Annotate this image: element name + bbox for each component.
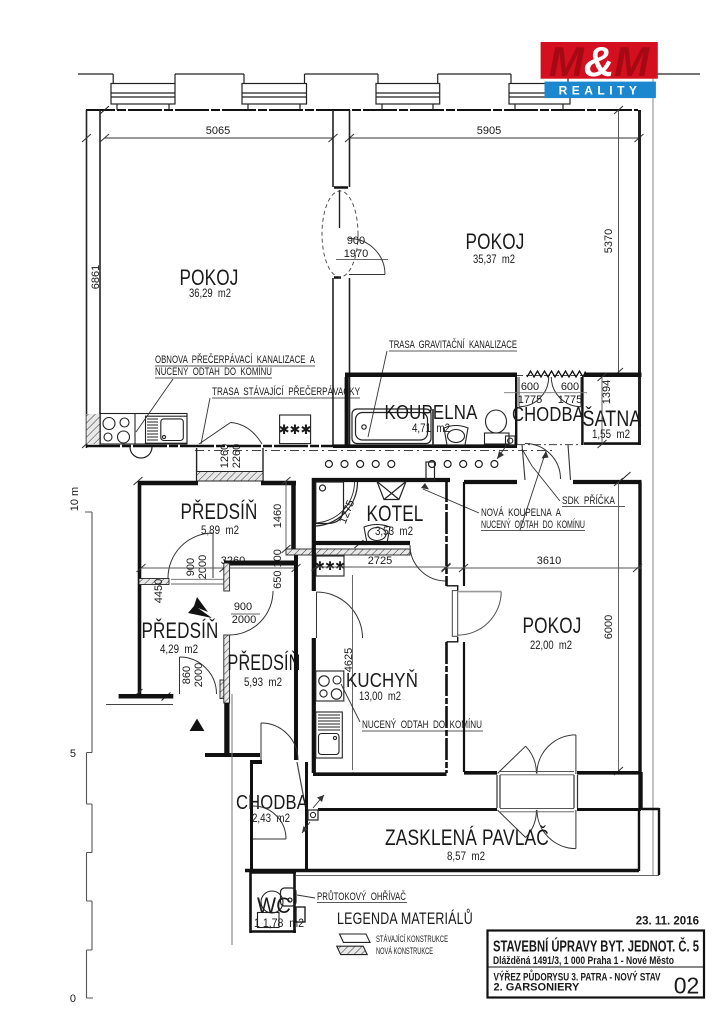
svg-text:650 100: 650 100 <box>272 549 284 589</box>
svg-text:STÁVAJÍCÍ KONSTRUKCE: STÁVAJÍCÍ KONSTRUKCE <box>376 934 448 945</box>
svg-text:PŘEDSÍŇ: PŘEDSÍŇ <box>142 618 219 643</box>
svg-text:NUCENÝ ODTAH DO KOMÍNU: NUCENÝ ODTAH DO KOMÍNU <box>155 365 272 378</box>
svg-text:NOVÁ KOUPELNA A: NOVÁ KOUPELNA A <box>481 506 561 519</box>
svg-text:5065: 5065 <box>206 125 230 137</box>
svg-text:Dlážděná 1491/3, 1 000 Praha 1: Dlážděná 1491/3, 1 000 Praha 1 - Nové Mě… <box>493 955 674 967</box>
svg-text:ŠATNA: ŠATNA <box>583 406 642 431</box>
svg-text:POKOJ: POKOJ <box>523 613 582 638</box>
svg-text:NUCENÝ ODTAH DO KOMÍNU: NUCENÝ ODTAH DO KOMÍNU <box>481 518 585 531</box>
svg-text:5,89 m2: 5,89 m2 <box>201 525 239 537</box>
svg-text:3610: 3610 <box>537 555 561 567</box>
svg-text:2260: 2260 <box>231 444 243 468</box>
svg-text:5,93 m2: 5,93 m2 <box>244 677 282 689</box>
svg-text:WC: WC <box>257 893 291 918</box>
svg-text:6000: 6000 <box>603 615 615 639</box>
svg-text:10 m: 10 m <box>69 487 81 511</box>
svg-text:1970: 1970 <box>344 248 368 260</box>
svg-text:600: 600 <box>521 381 539 393</box>
svg-text:CHODBA: CHODBA <box>512 404 584 426</box>
svg-text:0: 0 <box>70 993 76 1005</box>
svg-text:✱✱✱: ✱✱✱ <box>315 559 345 573</box>
svg-text:1260: 1260 <box>219 444 231 468</box>
svg-text:900: 900 <box>234 601 252 613</box>
svg-text:REALITY: REALITY <box>559 84 642 98</box>
svg-text:23. 11. 2016: 23. 11. 2016 <box>636 916 699 928</box>
svg-text:4625: 4625 <box>343 648 355 672</box>
svg-text:OBNOVA PŘEČERPÁVACÍ KANALIZA: OBNOVA PŘEČERPÁVACÍ KANALIZACE A <box>155 353 315 366</box>
svg-text:900: 900 <box>185 558 197 576</box>
svg-text:2000: 2000 <box>197 555 209 579</box>
svg-text:CHODBA: CHODBA <box>236 792 308 814</box>
svg-text:2,43 m2: 2,43 m2 <box>252 813 290 825</box>
svg-text:STAVEBNÍ ÚPRAVY BYT. JEDNOT. Č: STAVEBNÍ ÚPRAVY BYT. JEDNOT. Č. 5 <box>493 938 699 956</box>
svg-text:02: 02 <box>674 973 700 999</box>
svg-text:NOVÁ KONSTRUKCE: NOVÁ KONSTRUKCE <box>376 946 433 957</box>
svg-text:TRASA GRAVITAČNÍ KANALIZACE: TRASA GRAVITAČNÍ KANALIZACE <box>389 338 517 351</box>
svg-text:PRŮTOKOVÝ OHŘÍVAČ: PRŮTOKOVÝ OHŘÍVAČ <box>317 890 406 903</box>
svg-text:1,55 m2: 1,55 m2 <box>592 429 630 441</box>
svg-text:M&M: M&M <box>549 38 650 85</box>
svg-text:PŘEDSÍŇ: PŘEDSÍŇ <box>228 650 301 675</box>
svg-text:POKOJ: POKOJ <box>466 229 525 254</box>
svg-text:LEGENDA MATERIÁLŮ: LEGENDA MATERIÁLŮ <box>337 909 473 928</box>
svg-text:600: 600 <box>561 381 579 393</box>
svg-text:PŘEDSÍŇ: PŘEDSÍŇ <box>181 499 258 524</box>
svg-text:5905: 5905 <box>477 125 501 137</box>
svg-text:1394: 1394 <box>601 380 613 404</box>
svg-text:13,00 m2: 13,00 m2 <box>359 691 401 703</box>
svg-text:35,37 m2: 35,37 m2 <box>473 254 515 266</box>
svg-text:1 1,78 m2: 1 1,78 m2 <box>254 918 304 930</box>
svg-text:4450: 4450 <box>153 579 165 603</box>
svg-text:6861: 6861 <box>90 265 102 289</box>
svg-text:ZASKLENÁ PAVLAČ: ZASKLENÁ PAVLAČ <box>385 825 549 850</box>
svg-text:KOUPELNA: KOUPELNA <box>385 402 478 424</box>
svg-text:5: 5 <box>70 748 76 760</box>
svg-text:2. GARSONIERY: 2. GARSONIERY <box>494 982 580 994</box>
svg-text:2725: 2725 <box>368 555 392 567</box>
svg-text:860: 860 <box>181 666 193 684</box>
svg-text:SDK PŘÍČKA: SDK PŘÍČKA <box>562 494 616 507</box>
svg-text:2000: 2000 <box>232 614 256 626</box>
svg-text:TRASA STÁVAJÍCÍ PŘEČERPÁVAČK: TRASA STÁVAJÍCÍ PŘEČERPÁVAČKY <box>212 385 360 398</box>
svg-text:8,57 m2: 8,57 m2 <box>447 851 485 863</box>
svg-text:KUCHYŇ: KUCHYŇ <box>346 669 418 692</box>
svg-text:22,00 m2: 22,00 m2 <box>530 640 572 652</box>
svg-text:KOTEL: KOTEL <box>367 501 424 526</box>
svg-text:2000: 2000 <box>193 663 205 687</box>
svg-text:36,29 m2: 36,29 m2 <box>189 288 231 300</box>
svg-text:✱✱✱: ✱✱✱ <box>279 422 312 437</box>
svg-text:1460: 1460 <box>272 504 284 528</box>
svg-text:900: 900 <box>347 235 365 247</box>
svg-text:5370: 5370 <box>603 229 615 253</box>
svg-text:4,29 m2: 4,29 m2 <box>160 644 198 656</box>
svg-text:POKOJ: POKOJ <box>180 265 239 290</box>
